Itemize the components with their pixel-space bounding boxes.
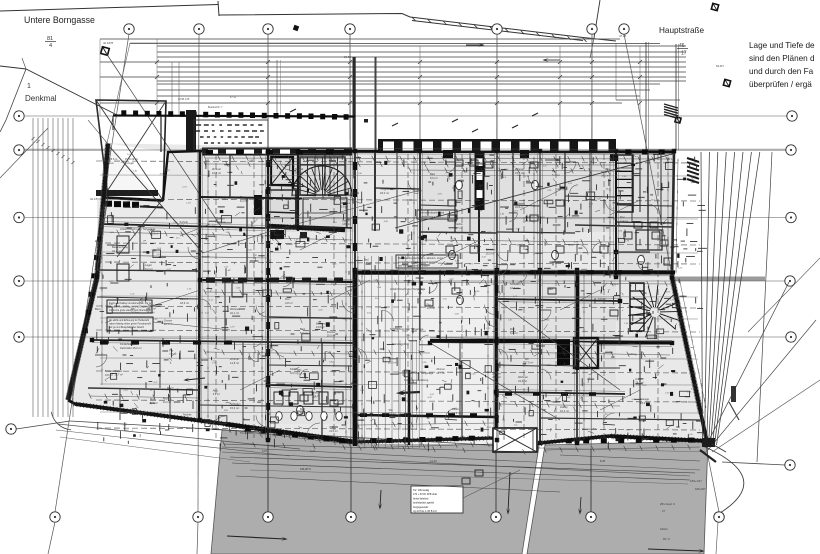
svg-text:Schlafen: Schlafen bbox=[515, 202, 525, 205]
svg-text:5.8 m²: 5.8 m² bbox=[341, 206, 348, 209]
svg-text:6,10: 6,10 bbox=[262, 449, 268, 453]
svg-text:antriebplatz agelde: antriebplatz agelde bbox=[413, 502, 435, 505]
svg-text:Büro: Büro bbox=[95, 307, 101, 311]
svg-text:4.6 m²: 4.6 m² bbox=[389, 413, 396, 416]
svg-text:18,6 m²: 18,6 m² bbox=[180, 301, 189, 305]
svg-text:auf gu und Busjeballg der Gil: auf gu und Busjeballg der Gileich bbox=[109, 326, 145, 329]
svg-text:24,2 m²: 24,2 m² bbox=[112, 249, 121, 253]
svg-text:Wohnen: Wohnen bbox=[341, 202, 351, 205]
svg-text:ferhal fahrbeb: ferhal fahrbeb bbox=[413, 497, 429, 500]
svg-text:Flur: Flur bbox=[150, 229, 154, 232]
svg-text:25.2 m²: 25.2 m² bbox=[295, 171, 304, 174]
svg-text:Technik: Technik bbox=[179, 221, 188, 224]
svg-text:186,98 %: 186,98 % bbox=[300, 467, 312, 471]
svg-text:7.7 m²: 7.7 m² bbox=[364, 262, 371, 265]
svg-text:Zimmer: Zimmer bbox=[436, 368, 445, 371]
svg-text:Lage und Tiefe de: Lage und Tiefe de bbox=[749, 41, 815, 50]
svg-text:13.5 m²: 13.5 m² bbox=[217, 221, 226, 224]
svg-text:Flur: Flur bbox=[620, 215, 625, 219]
svg-text:25.5 m²: 25.5 m² bbox=[486, 252, 495, 255]
svg-text:24.3 m²: 24.3 m² bbox=[131, 312, 140, 315]
svg-text:Fenix und Kalfeq und abmeigbar: Fenix und Kalfeq und abmeigbar. Par An bbox=[109, 302, 153, 305]
svg-text:Pu 0.19 m²: Pu 0.19 m² bbox=[125, 157, 138, 161]
svg-text:Büro: Büro bbox=[275, 234, 281, 237]
svg-text:27: 27 bbox=[662, 509, 665, 513]
svg-text:19.9 m²: 19.9 m² bbox=[388, 361, 397, 364]
svg-text:16,4 m²: 16,4 m² bbox=[560, 409, 569, 413]
svg-text:Bad: Bad bbox=[300, 407, 305, 411]
svg-text:13.8 m²: 13.8 m² bbox=[316, 326, 325, 329]
svg-text:17: 17 bbox=[681, 51, 687, 57]
svg-text:Schlafen: Schlafen bbox=[510, 282, 521, 286]
svg-text:Zimmer: Zimmer bbox=[164, 320, 173, 323]
svg-text:Zimmer: Zimmer bbox=[492, 372, 501, 375]
svg-text:24,6 m²: 24,6 m² bbox=[518, 379, 527, 383]
svg-text:13.5 m²: 13.5 m² bbox=[427, 307, 436, 310]
svg-text:26.8 m²: 26.8 m² bbox=[515, 206, 524, 209]
svg-text:WC: WC bbox=[525, 358, 529, 361]
svg-text:Metallbau Fenstertüren m. abst: Metallbau Fenstertüren m. absturzs. Verg… bbox=[398, 257, 443, 260]
svg-text:20.5 m²: 20.5 m² bbox=[327, 335, 336, 338]
svg-text:17b + B OK FFB obal: 17b + B OK FFB obal bbox=[413, 493, 437, 496]
svg-text:Schlafen: Schlafen bbox=[486, 249, 496, 252]
svg-text:27.9 m²: 27.9 m² bbox=[525, 362, 534, 365]
svg-text:47.11: 47.11 bbox=[230, 96, 236, 99]
svg-text:Bad: Bad bbox=[300, 327, 305, 331]
svg-text:27.0 m²: 27.0 m² bbox=[183, 417, 192, 420]
svg-text:Küche: Küche bbox=[266, 346, 274, 349]
svg-text:Wohnen: Wohnen bbox=[148, 304, 158, 307]
svg-text:Hauptstraße: Hauptstraße bbox=[659, 26, 704, 35]
svg-text:20.5 m²: 20.5 m² bbox=[146, 312, 155, 315]
svg-text:Denkmal: Denkmal bbox=[25, 94, 57, 103]
svg-text:Technik: Technik bbox=[295, 168, 304, 171]
svg-text:Abst.: Abst. bbox=[313, 392, 319, 395]
svg-text:Untere Borngasse: Untere Borngasse bbox=[24, 15, 95, 25]
svg-text:81: 81 bbox=[47, 36, 53, 42]
svg-text:Bad: Bad bbox=[364, 258, 369, 261]
svg-text:26.7 m²: 26.7 m² bbox=[636, 381, 645, 384]
svg-text:rl zuger: rl zuger bbox=[125, 161, 134, 165]
svg-text:8,2 m²: 8,2 m² bbox=[145, 267, 153, 271]
svg-text:19.84: 19.84 bbox=[344, 55, 351, 59]
svg-text:Flur: Flur bbox=[427, 303, 431, 306]
svg-text:63-M7: 63-M7 bbox=[716, 64, 724, 68]
svg-text:22.1 m²: 22.1 m² bbox=[164, 323, 173, 326]
svg-text:5,2 m²: 5,2 m² bbox=[300, 331, 308, 335]
svg-text:Trennwandsystem und: Trennwandsystem und bbox=[419, 212, 445, 215]
svg-text:Balkon: Balkon bbox=[342, 219, 350, 222]
svg-text:189+347: 189+347 bbox=[695, 487, 706, 491]
svg-text:13.0 m²: 13.0 m² bbox=[342, 223, 351, 226]
svg-text:189+347: 189+347 bbox=[690, 479, 702, 483]
svg-text:23.4 m²: 23.4 m² bbox=[222, 281, 231, 284]
svg-text:6.5 m²: 6.5 m² bbox=[313, 395, 320, 398]
svg-text:8,45: 8,45 bbox=[600, 459, 606, 463]
svg-text:Wohnen: Wohnen bbox=[230, 307, 240, 311]
svg-text:Dararlagplting: Dararlagplting bbox=[392, 342, 409, 346]
svg-text:21.4 m²: 21.4 m² bbox=[297, 373, 306, 376]
svg-text:Wohnen: Wohnen bbox=[518, 375, 528, 379]
svg-text:Bestand Nr. 7: Bestand Nr. 7 bbox=[208, 106, 223, 109]
svg-text:16,9 m²: 16,9 m² bbox=[510, 286, 519, 290]
svg-text:Terrasse: Terrasse bbox=[388, 358, 398, 361]
svg-text:13.7 m²: 13.7 m² bbox=[115, 374, 124, 377]
svg-text:Gp 107GL 1.05 B 0.9: Gp 107GL 1.05 B 0.9 bbox=[413, 510, 437, 513]
svg-text:überprüfen / ergä: überprüfen / ergä bbox=[749, 80, 812, 89]
svg-text:Whs Gepl. S: Whs Gepl. S bbox=[660, 502, 675, 506]
svg-text:WC: WC bbox=[131, 308, 135, 311]
svg-text:WC: WC bbox=[389, 409, 393, 412]
svg-text:naben fahrtig einber geser Fen: naben fahrtig einber geser Fensterprofil bbox=[109, 323, 151, 326]
svg-text:Tor: OKmaultg: Tor: OKmaultg bbox=[413, 489, 430, 492]
svg-text:Zimmer: Zimmer bbox=[230, 357, 239, 361]
svg-text:Wohnen / Essen: Wohnen / Essen bbox=[525, 215, 545, 219]
svg-text:Lager: Lager bbox=[145, 263, 152, 267]
svg-text:Zimmer: Zimmer bbox=[327, 331, 336, 334]
svg-text:18,2 m²: 18,2 m² bbox=[380, 191, 389, 195]
svg-text:Abst.: Abst. bbox=[213, 390, 219, 393]
svg-text:Keller: Keller bbox=[452, 407, 459, 411]
svg-text:12,40: 12,40 bbox=[430, 459, 437, 463]
svg-text:21.6 m²: 21.6 m² bbox=[329, 430, 338, 433]
svg-text:WC: WC bbox=[297, 369, 301, 372]
svg-text:burgsgeswatz: burgsgeswatz bbox=[413, 506, 429, 509]
svg-text:und Wartungsvorschrift dazu: und Wartungsvorschrift dazu bbox=[398, 265, 429, 268]
svg-text:Küche: Küche bbox=[636, 378, 644, 381]
svg-text:22,1 m²: 22,1 m² bbox=[230, 311, 239, 315]
svg-text:Zimmer: Zimmer bbox=[212, 167, 221, 171]
svg-text:14.3 m²: 14.3 m² bbox=[163, 401, 172, 404]
svg-text:Rampe 15%: Rampe 15% bbox=[582, 427, 597, 431]
svg-text:Flur: Flur bbox=[169, 349, 173, 352]
svg-text:42.1878: 42.1878 bbox=[103, 41, 114, 45]
svg-text:47.98: 47.98 bbox=[619, 34, 626, 38]
svg-text:Garage: Garage bbox=[640, 397, 649, 401]
svg-text:4: 4 bbox=[49, 43, 52, 49]
svg-text:3.2 m²: 3.2 m² bbox=[213, 393, 220, 396]
svg-text:Technik: Technik bbox=[183, 414, 192, 417]
svg-text:Balkon: Balkon bbox=[217, 218, 225, 221]
svg-text:15.5 m²: 15.5 m² bbox=[148, 308, 157, 311]
svg-text:4,8 m²: 4,8 m² bbox=[285, 301, 293, 305]
svg-text:Abst.: Abst. bbox=[163, 398, 169, 401]
svg-text:16,4 m²: 16,4 m² bbox=[212, 171, 221, 175]
svg-text:Wohnen: Wohnen bbox=[316, 323, 326, 326]
svg-text:24.7 m²: 24.7 m² bbox=[436, 372, 445, 375]
svg-text:42.58 1.05: 42.58 1.05 bbox=[178, 98, 190, 101]
svg-text:3.7 m²: 3.7 m² bbox=[266, 349, 273, 352]
svg-text:26.0 m²: 26.0 m² bbox=[492, 376, 501, 379]
svg-text:Abst.: Abst. bbox=[222, 278, 228, 281]
svg-text:12.9 m²: 12.9 m² bbox=[150, 233, 159, 236]
svg-text:14,8 m²: 14,8 m² bbox=[230, 361, 239, 365]
svg-text:65 / 6: 65 / 6 bbox=[663, 537, 670, 541]
svg-text:24.1 m²: 24.1 m² bbox=[601, 175, 610, 178]
svg-text:7.0 m²: 7.0 m² bbox=[169, 353, 176, 356]
svg-text:1: 1 bbox=[27, 83, 31, 90]
svg-text:Diele: Diele bbox=[601, 171, 607, 174]
svg-text:5,6 m²: 5,6 m² bbox=[430, 176, 438, 180]
svg-text:Fahrräder 15,2 m²: Fahrräder 15,2 m² bbox=[120, 346, 142, 350]
svg-text:Bad: Bad bbox=[548, 287, 553, 291]
svg-text:25.7 m²: 25.7 m² bbox=[179, 225, 188, 228]
svg-text:Aufzug: Aufzug bbox=[628, 352, 637, 356]
svg-text:WC: WC bbox=[329, 426, 333, 429]
svg-text:Fahrte: Fahrte bbox=[660, 527, 668, 531]
svg-text:und durch den Fa: und durch den Fa bbox=[749, 67, 814, 76]
svg-text:15,3 m²: 15,3 m² bbox=[230, 406, 239, 410]
svg-text:Balkon: Balkon bbox=[115, 370, 123, 373]
svg-text:sind den Plänen d: sind den Plänen d bbox=[749, 54, 815, 63]
svg-text:Als abfils und Erfineung fer: Als abfils und Erfineung fer Helbezahl bbox=[109, 319, 149, 322]
svg-text:22.6 m²: 22.6 m² bbox=[275, 238, 284, 241]
